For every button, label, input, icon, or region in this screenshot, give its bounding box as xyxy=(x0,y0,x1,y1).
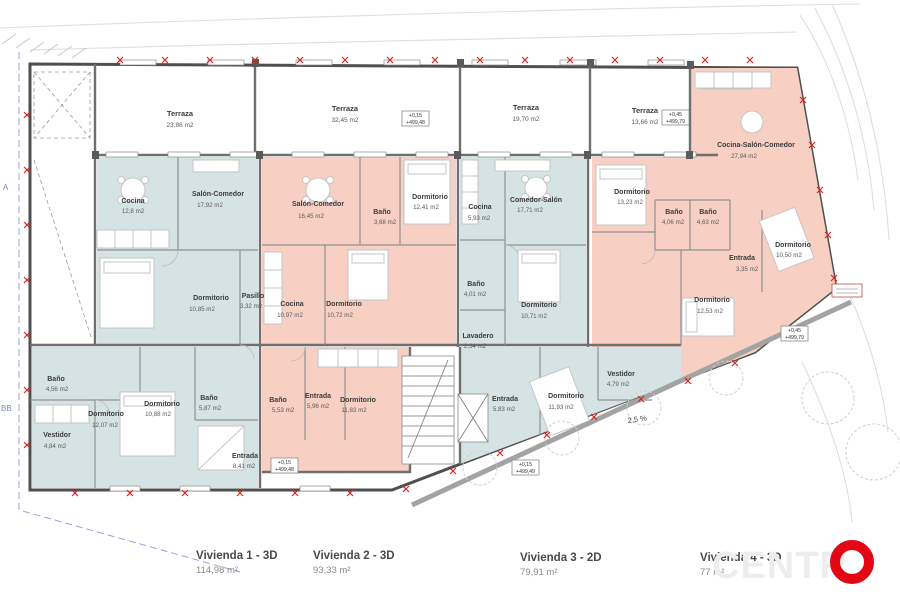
svg-text:+0,15: +0,15 xyxy=(519,462,532,468)
room-area: 10,97 m2 xyxy=(277,312,303,319)
room-name: Pasillo xyxy=(242,293,265,300)
room-name: Dormitorio xyxy=(614,189,650,196)
terrace-area: 32,45 m2 xyxy=(331,117,358,124)
room-area: 4,63 m2 xyxy=(697,219,720,226)
room-name: Vestidor xyxy=(43,432,71,439)
bush xyxy=(802,372,854,424)
terrace-label: Terraza xyxy=(513,103,540,112)
boundary-label-bb: BB xyxy=(1,404,12,413)
room-name: Lavadero xyxy=(462,333,493,340)
room-name: Dormitorio xyxy=(521,302,557,309)
building: 2,5 % xyxy=(30,59,851,505)
room-name: Entrada xyxy=(492,396,518,403)
room-area: 5,83 m2 xyxy=(493,406,516,413)
room-area: 11,83 m2 xyxy=(341,407,367,414)
room-area: 10,71 m2 xyxy=(521,313,547,320)
room-area: 11,93 m2 xyxy=(548,404,574,411)
room-name: Dormitorio xyxy=(694,297,730,304)
room-area: 3,68 m2 xyxy=(374,219,397,226)
room-name: Baño xyxy=(200,395,218,402)
room-area: 17,92 m2 xyxy=(197,202,223,209)
room-area: 12,8 m2 xyxy=(122,208,145,215)
room-area: 4,01 m2 xyxy=(464,291,487,298)
room-name: Entrada xyxy=(729,255,755,262)
svg-text:+0,45: +0,45 xyxy=(669,112,682,118)
room-area: 12,41 m2 xyxy=(413,204,439,211)
elevation-marker: +0,45 +499,79 xyxy=(662,110,689,125)
room-area: 5,87 m2 xyxy=(199,405,222,412)
room-name: Dormitorio xyxy=(340,397,376,404)
room-name: Comedor-Salón xyxy=(510,197,562,204)
legend-item: Vivienda 3 - 2D 79,91 m² xyxy=(520,552,602,578)
elevation-marker: +0,15 +499,48 xyxy=(402,111,429,126)
elevation-marker: +0,15 +499,49 xyxy=(512,460,539,475)
slope-label: 2,5 % xyxy=(627,413,648,425)
svg-text:114,98 m²: 114,98 m² xyxy=(196,565,238,576)
svg-text:+499,79: +499,79 xyxy=(666,119,685,125)
boundary-note-box xyxy=(832,284,862,297)
terrace-label: Terraza xyxy=(632,106,659,115)
room-name: Baño xyxy=(47,376,65,383)
centro-logo: CENTR xyxy=(712,545,869,587)
room-area: 3,32 m2 xyxy=(240,303,263,310)
room-area: 12,53 m2 xyxy=(697,308,723,315)
svg-text:Vivienda 3 - 2D: Vivienda 3 - 2D xyxy=(520,552,602,564)
room-area: 3,35 m2 xyxy=(736,266,759,273)
room-area: 5,96 m2 xyxy=(307,403,330,410)
svg-text:+0,15: +0,15 xyxy=(409,113,422,119)
room-name: Cocina xyxy=(121,198,144,205)
room-area: 27,94 m2 xyxy=(731,153,757,160)
room-area: 4,06 m2 xyxy=(662,219,685,226)
room-area: 4,56 m2 xyxy=(46,386,69,393)
room-area: 4,79 m2 xyxy=(607,381,630,388)
room-name: Salón-Comedor xyxy=(192,191,244,198)
svg-text:+499,48: +499,48 xyxy=(275,467,294,473)
terrace-area: 13,66 m2 xyxy=(631,119,658,126)
room-area: 10,85 m2 xyxy=(189,306,215,313)
room-name: Entrada xyxy=(305,393,331,400)
room-name: Dormitorio xyxy=(412,194,448,201)
room-name: Cocina-Salón-Comedor xyxy=(717,142,795,149)
room-name: Dormitorio xyxy=(326,301,362,308)
boundary-label-a: A xyxy=(3,183,9,192)
room-name: Dormitorio xyxy=(193,295,229,302)
elevation-marker: +0,45 +499,79 xyxy=(781,326,808,341)
bush xyxy=(846,424,900,480)
svg-text:+0,15: +0,15 xyxy=(278,460,291,466)
room-area: 10,50 m2 xyxy=(776,252,802,259)
room-area: 2,34 m2 xyxy=(464,343,487,350)
room-name: Baño xyxy=(699,209,717,216)
terrace-label: Terraza xyxy=(167,109,194,118)
elevation-marker: +0,15 +499,48 xyxy=(271,458,298,473)
terrace-label: Terraza xyxy=(332,104,359,113)
svg-text:+499,48: +499,48 xyxy=(406,120,425,126)
room-area: 8,41 m2 xyxy=(233,463,256,470)
floor-plan-page: A BB xyxy=(0,0,900,600)
room-area: 12,07 m2 xyxy=(92,422,118,429)
room-name: Dormitorio xyxy=(144,401,180,408)
room-name: Dormitorio xyxy=(775,242,811,249)
svg-text:Vivienda 2 - 3D: Vivienda 2 - 3D xyxy=(313,550,395,562)
svg-text:Vivienda 1 - 3D: Vivienda 1 - 3D xyxy=(196,550,278,562)
room-name: Entrada xyxy=(232,453,258,460)
room-area: 10,88 m2 xyxy=(145,411,171,418)
room-name: Baño xyxy=(665,209,683,216)
svg-text:+0,45: +0,45 xyxy=(788,328,801,334)
legend: Vivienda 1 - 3D 114,98 m² Vivienda 2 - 3… xyxy=(196,550,782,578)
room-name: Baño xyxy=(467,281,485,288)
room-area: 17,71 m2 xyxy=(517,207,543,214)
room-area: 16,45 m2 xyxy=(298,213,324,220)
room-area: 10,72 m2 xyxy=(327,312,353,319)
room-area: 13,23 m2 xyxy=(617,199,643,206)
room-area: 5,93 m2 xyxy=(468,215,491,222)
terrace-area: 19,70 m2 xyxy=(512,116,539,123)
room-name: Vestidor xyxy=(607,371,635,378)
room-area: 4,84 m2 xyxy=(44,443,67,450)
room-name: Cocina xyxy=(468,204,491,211)
terrace-area: 23,86 m2 xyxy=(166,122,193,129)
room-name: Cocina xyxy=(280,301,303,308)
svg-text:+499,79: +499,79 xyxy=(785,335,804,341)
room-name: Baño xyxy=(373,209,391,216)
centro-logo-letters: CENTR xyxy=(712,545,848,587)
svg-text:93,33 m²: 93,33 m² xyxy=(313,565,351,576)
room-area: 5,53 m2 xyxy=(272,407,295,414)
floor-plan-svg: A BB xyxy=(0,0,900,600)
svg-text:79,91 m²: 79,91 m² xyxy=(520,567,558,578)
room-name: Baño xyxy=(269,397,287,404)
room-name: Dormitorio xyxy=(548,393,584,400)
room-name: Salón-Comedor xyxy=(292,201,344,208)
top-left-hatch xyxy=(2,34,86,58)
svg-text:+499,49: +499,49 xyxy=(516,469,535,475)
room-name: Dormitorio xyxy=(88,411,124,418)
legend-item: Vivienda 2 - 3D 93,33 m² xyxy=(313,550,395,576)
